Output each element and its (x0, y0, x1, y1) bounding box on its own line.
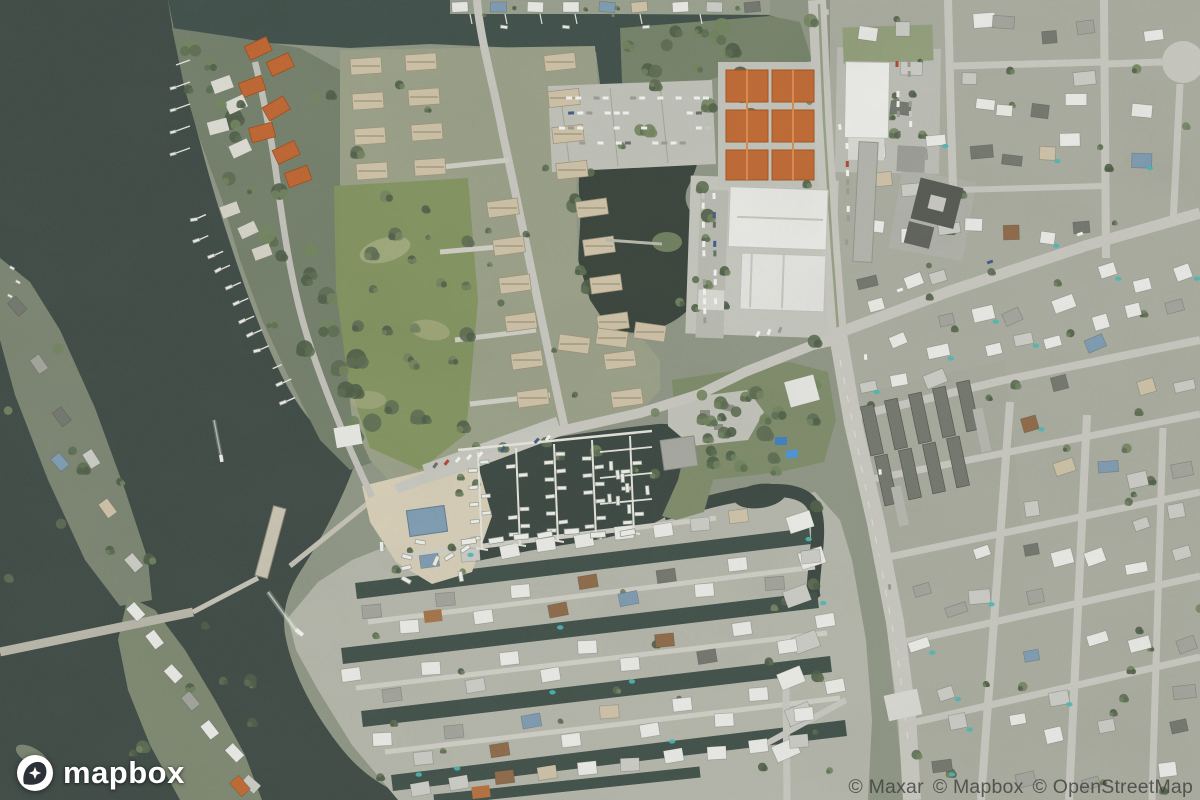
attribution-openstreetmap[interactable]: © OpenStreetMap (1033, 776, 1193, 798)
map-attribution: © Maxar© Mapbox© OpenStreetMap (839, 776, 1193, 799)
mapbox-logo-icon (16, 754, 54, 792)
satellite-imagery (0, 0, 1200, 800)
image-grain (0, 0, 1200, 800)
satellite-map[interactable]: mapbox © Maxar© Mapbox© OpenStreetMap (0, 0, 1200, 800)
mapbox-logo[interactable]: mapbox (16, 754, 185, 792)
attribution-mapbox[interactable]: © Mapbox (933, 776, 1024, 798)
mapbox-wordmark: mapbox (63, 755, 185, 791)
attribution-maxar[interactable]: © Maxar (848, 776, 923, 798)
